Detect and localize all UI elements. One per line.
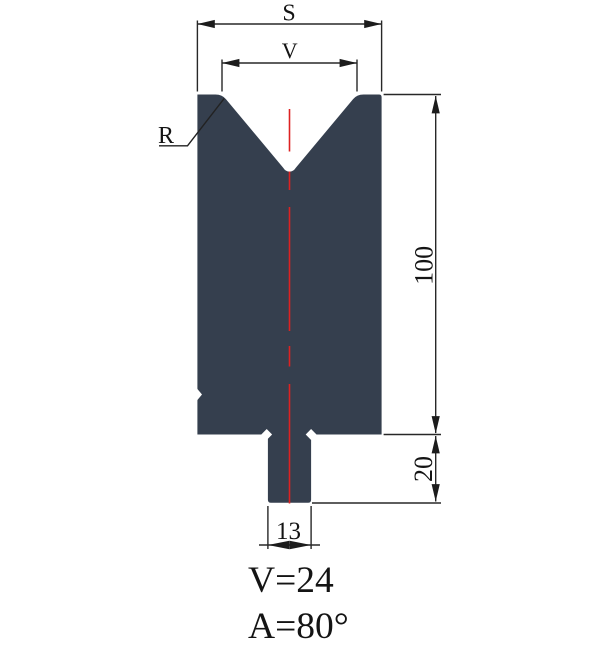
svg-text:V: V: [282, 38, 298, 63]
svg-text:A=80°: A=80°: [248, 606, 349, 647]
svg-text:V=24: V=24: [248, 560, 334, 601]
svg-text:100: 100: [410, 246, 439, 285]
svg-text:R: R: [158, 123, 174, 149]
svg-text:13: 13: [276, 518, 301, 545]
svg-text:S: S: [282, 1, 295, 27]
svg-text:20: 20: [409, 456, 438, 482]
